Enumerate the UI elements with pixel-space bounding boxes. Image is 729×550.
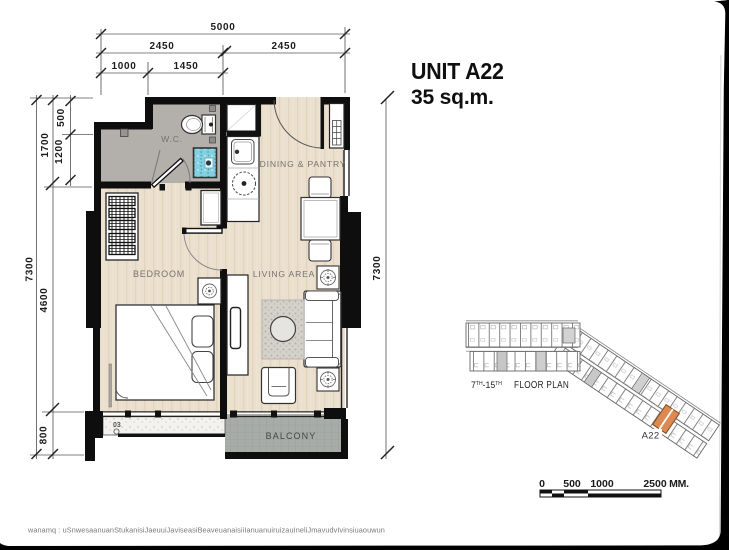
svg-text:1000: 1000 (590, 478, 614, 490)
svg-text:FLOOR PLAN: FLOOR PLAN (514, 379, 569, 390)
svg-text:1450: 1450 (173, 61, 198, 72)
svg-text:2500: 2500 (643, 478, 667, 490)
svg-text:35 sq.m.: 35 sq.m. (411, 85, 494, 109)
svg-text:7300: 7300 (25, 256, 36, 281)
svg-text:2450: 2450 (149, 41, 174, 52)
svg-text:7300: 7300 (372, 255, 383, 280)
svg-text:DINING & PANTRY: DINING & PANTRY (260, 159, 347, 169)
svg-text:2450: 2450 (271, 41, 296, 52)
svg-text:UNIT A22: UNIT A22 (411, 58, 504, 84)
svg-text:800: 800 (39, 426, 50, 445)
svg-text:wanamq : uSnwesaanuanStukanisi: wanamq : uSnwesaanuanStukanisiJaeuuiJavi… (27, 526, 385, 535)
svg-text:0: 0 (539, 478, 545, 490)
svg-text:BALCONY: BALCONY (266, 431, 317, 441)
svg-text:500: 500 (56, 108, 67, 127)
svg-text:1000: 1000 (111, 61, 136, 72)
svg-text:W.C.: W.C. (161, 134, 183, 144)
svg-text:MM.: MM. (669, 478, 689, 490)
svg-text:500: 500 (563, 478, 581, 490)
svg-text:5000: 5000 (210, 22, 235, 33)
svg-text:LIVING AREA: LIVING AREA (253, 269, 315, 279)
svg-text:1200: 1200 (54, 139, 65, 164)
svg-text:1700: 1700 (40, 132, 51, 157)
svg-text:4600: 4600 (39, 287, 50, 312)
svg-text:03: 03 (113, 422, 121, 429)
svg-text:BEDROOM: BEDROOM (133, 269, 185, 279)
svg-text:A22: A22 (642, 431, 660, 442)
